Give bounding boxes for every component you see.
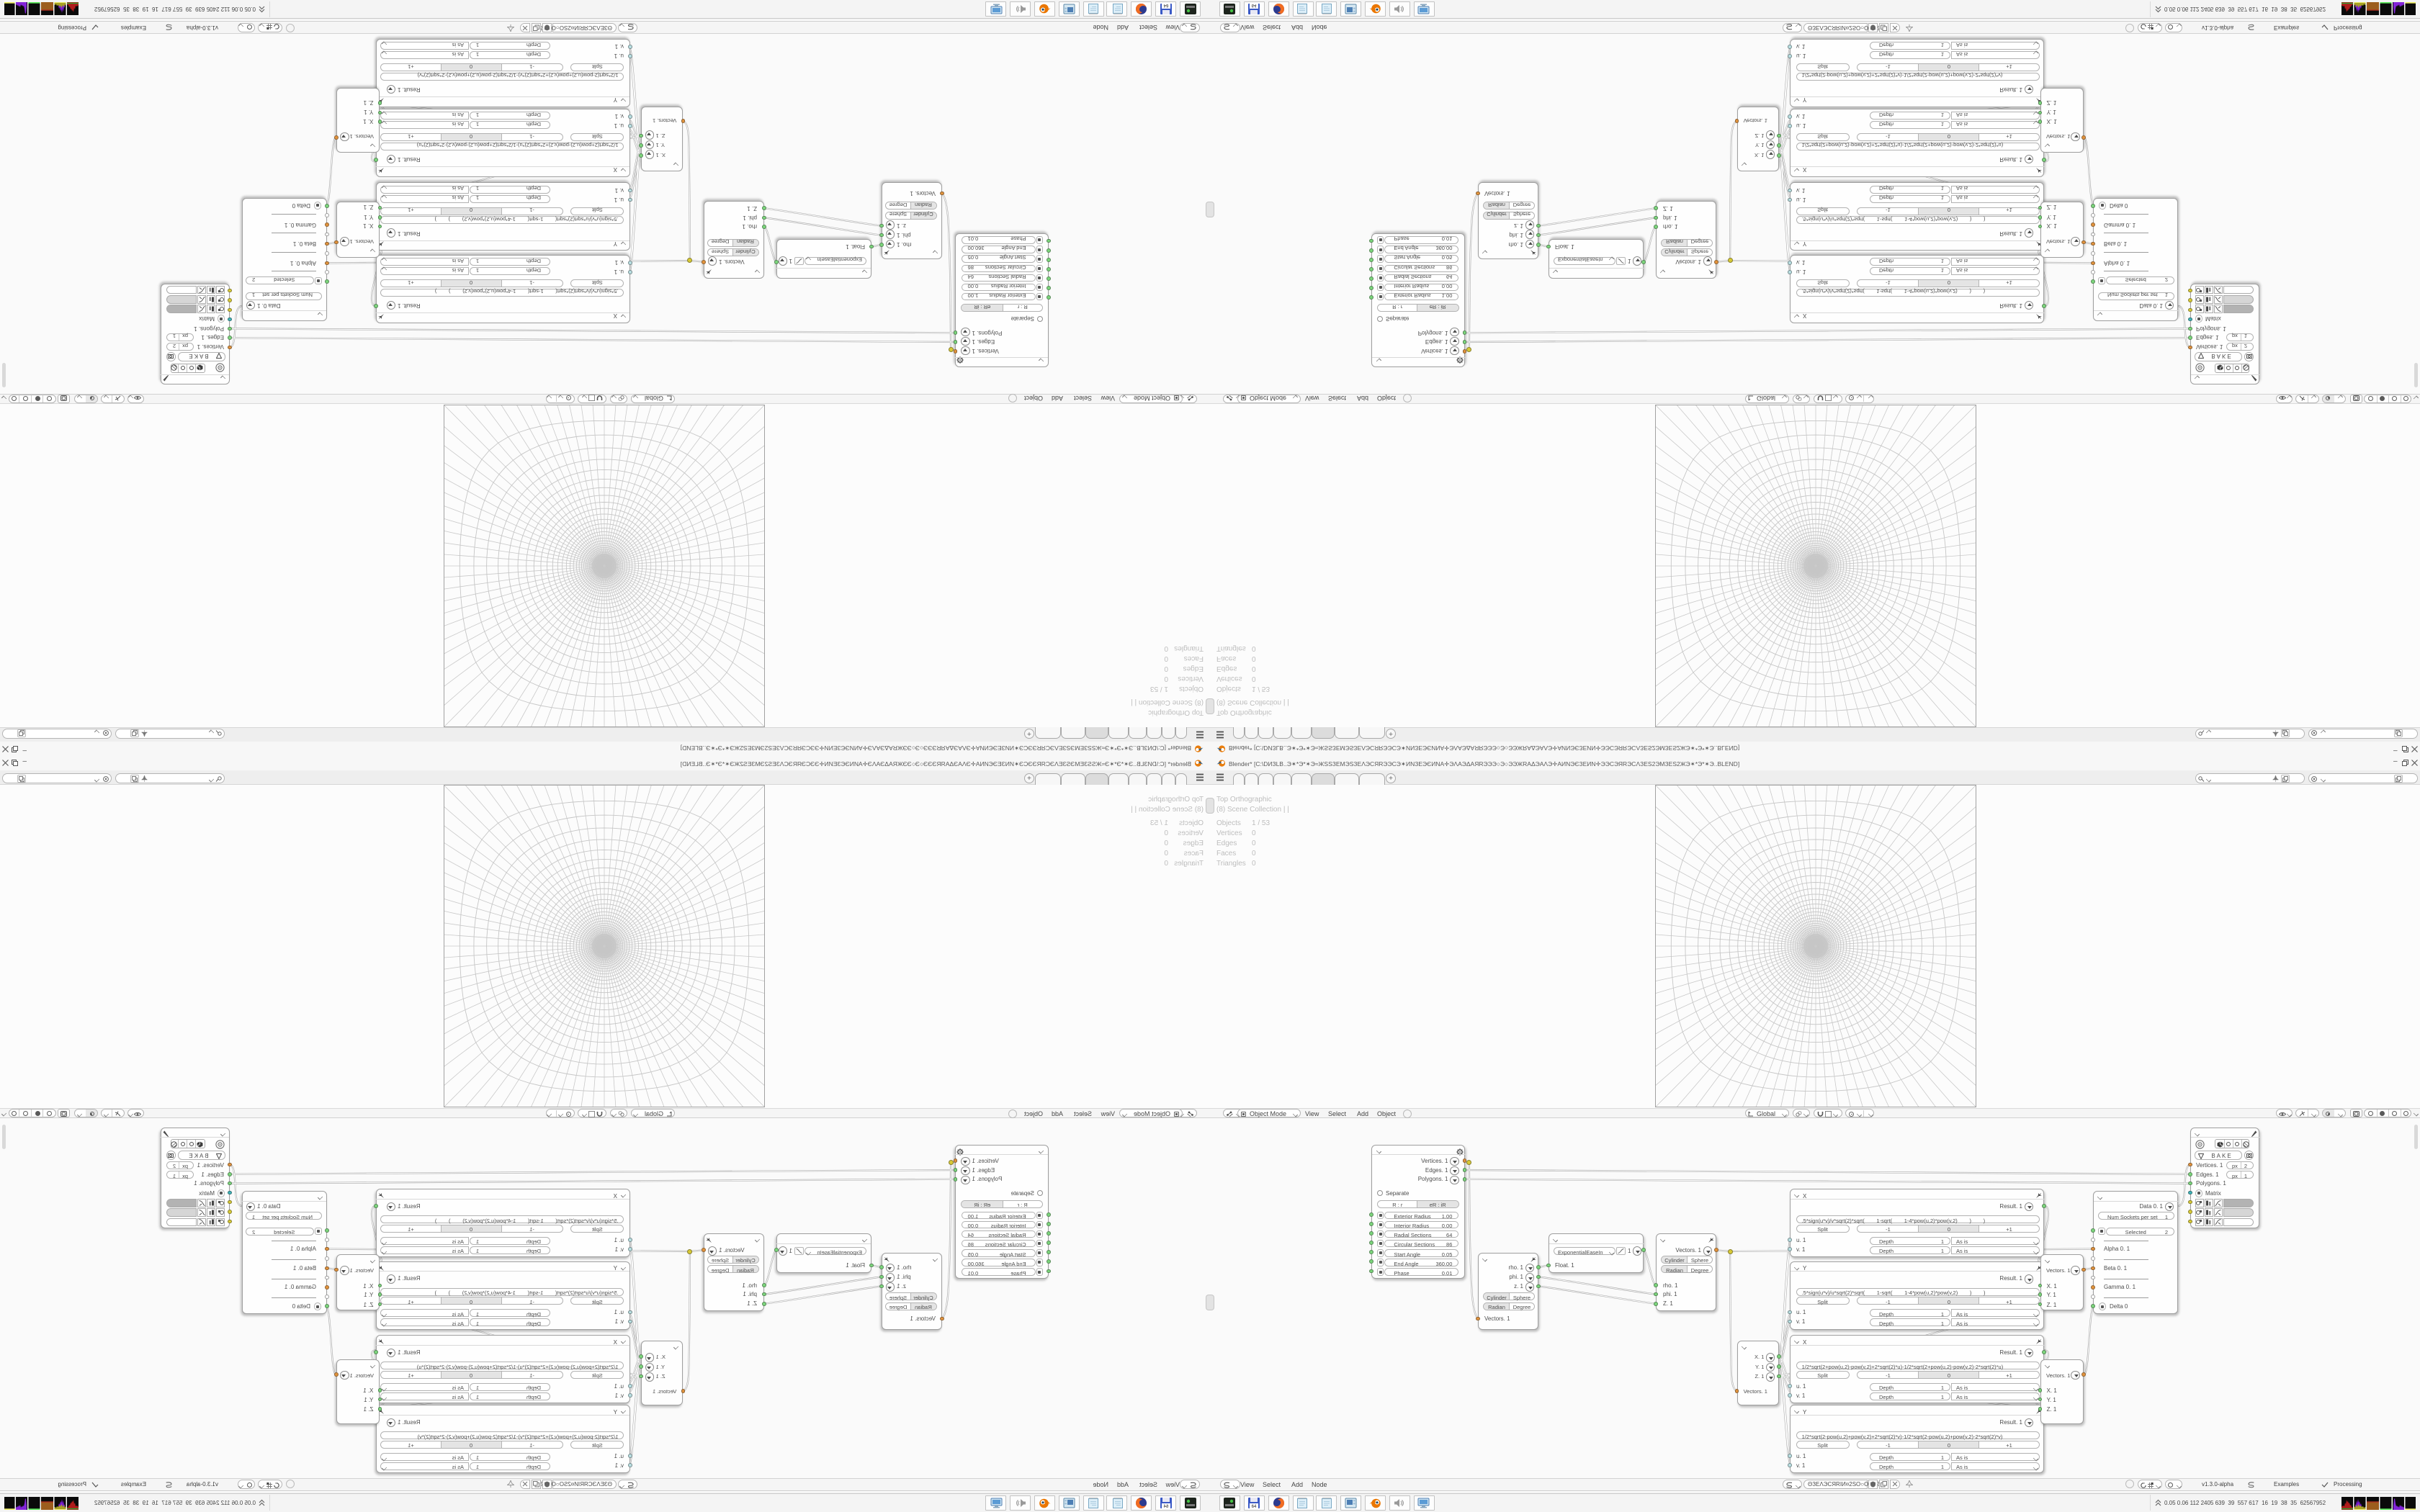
svg-text:64: 64: [1252, 3, 1257, 7]
svg-text:64: 64: [1163, 1505, 1168, 1509]
svg-text:64: 64: [1252, 1505, 1257, 1509]
svg-text:64: 64: [1163, 3, 1168, 7]
